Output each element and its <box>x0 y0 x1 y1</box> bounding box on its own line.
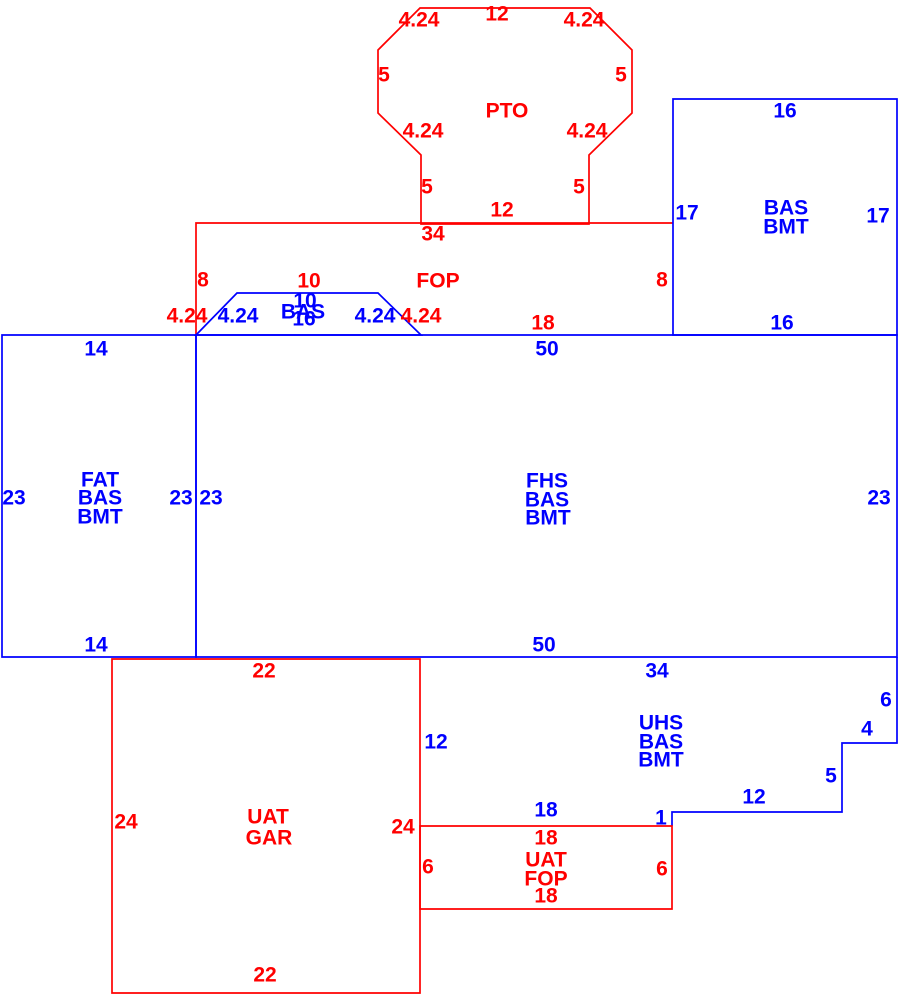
area-outline-bas-bump <box>196 293 421 335</box>
sketch-canvas <box>0 0 912 1005</box>
area-outline-fop <box>196 223 673 335</box>
area-outline-fhs <box>196 335 897 657</box>
floor-plan-sketch: 124.244.2455PTO4.244.24551234810FOP84.24… <box>0 0 912 1005</box>
area-outline-bas-bmt <box>673 99 897 335</box>
area-outline-uhs <box>672 657 897 826</box>
area-outline-uat-fop <box>420 826 672 909</box>
area-outline-fat <box>2 335 196 657</box>
area-outline-pto <box>378 8 632 224</box>
area-outline-uat-gar <box>112 659 420 993</box>
